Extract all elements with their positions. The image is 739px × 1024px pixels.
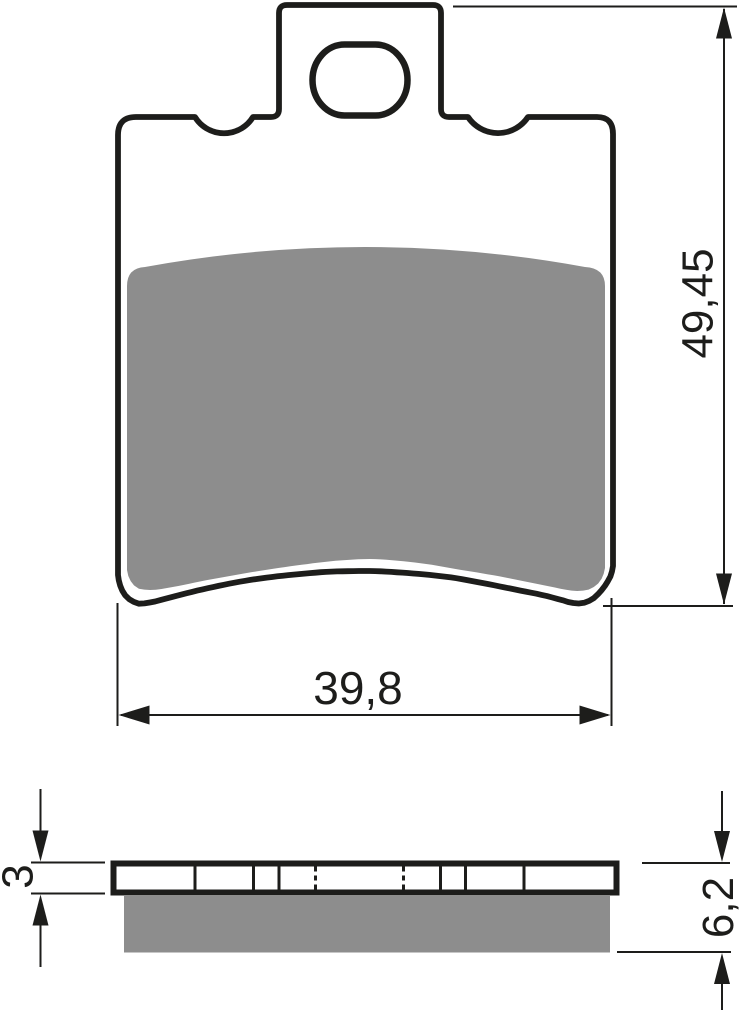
svg-text:39,8: 39,8: [313, 662, 403, 714]
svg-text:49,45: 49,45: [674, 248, 723, 358]
svg-text:3: 3: [0, 864, 43, 888]
svg-text:6,2: 6,2: [694, 877, 739, 938]
